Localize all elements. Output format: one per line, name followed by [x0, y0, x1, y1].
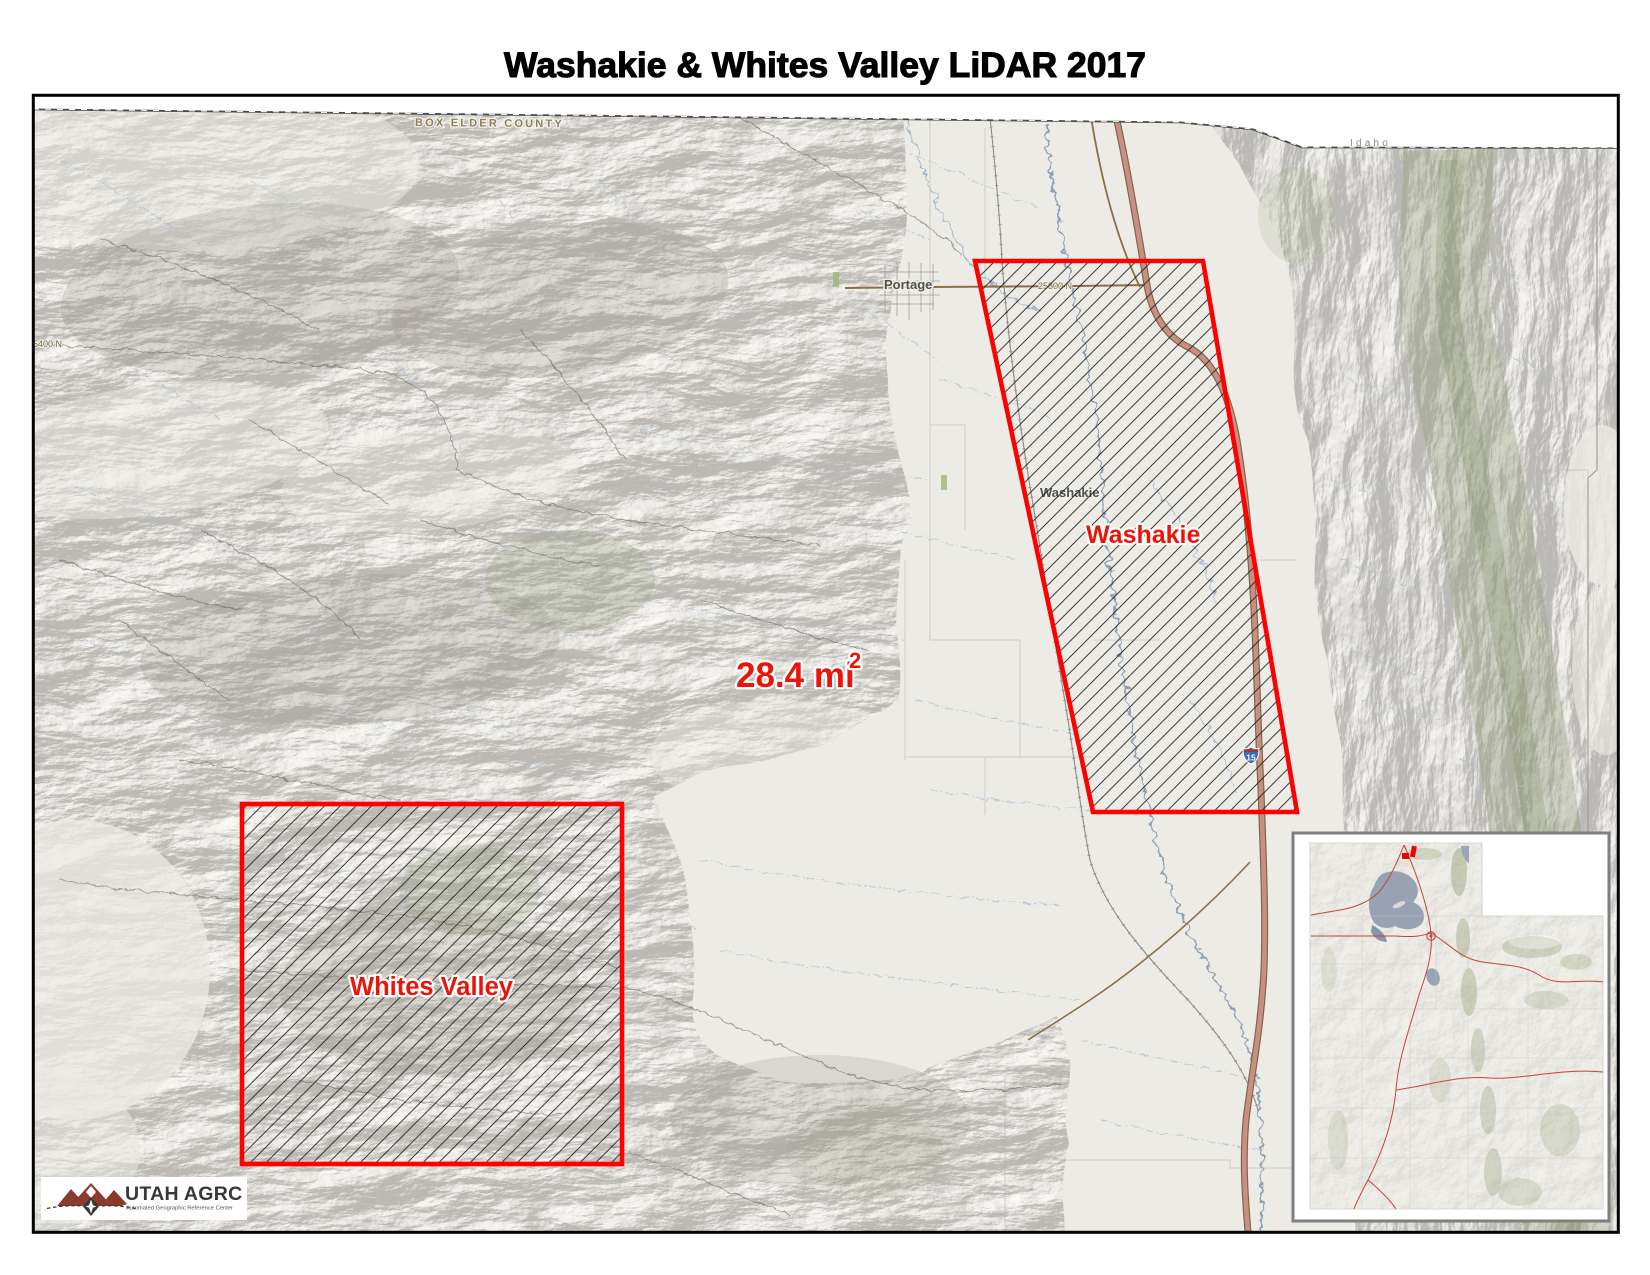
svg-text:Washakie: Washakie — [1086, 521, 1201, 549]
svg-text:Automated Geographic Reference: Automated Geographic Reference Center — [126, 1206, 233, 1212]
svg-text:15: 15 — [1246, 753, 1256, 763]
svg-text:2: 2 — [849, 648, 861, 673]
svg-text:28.4 mi: 28.4 mi — [736, 656, 855, 695]
svg-text:Portage: Portage — [884, 277, 932, 292]
svg-text:Whites Valley: Whites Valley — [350, 973, 514, 1001]
svg-text:Idaho: Idaho — [1350, 138, 1391, 149]
svg-text:BOX ELDER COUNTY: BOX ELDER COUNTY — [415, 117, 564, 130]
svg-text:UTAH AGRC: UTAH AGRC — [125, 1183, 243, 1205]
